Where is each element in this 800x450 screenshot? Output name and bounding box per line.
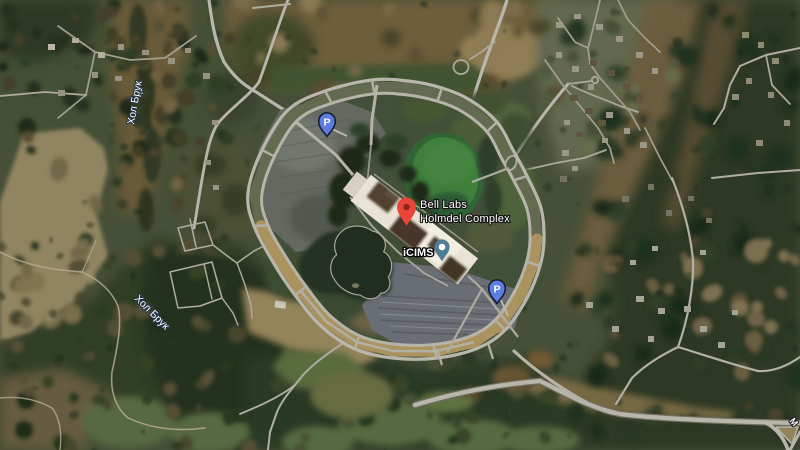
svg-text:iCIMS: iCIMS — [403, 247, 434, 259]
svg-text:Holmdel Complex: Holmdel Complex — [420, 213, 510, 225]
svg-text:Bell Labs: Bell Labs — [420, 199, 467, 211]
svg-text:P: P — [493, 283, 500, 295]
svg-text:P: P — [323, 116, 330, 128]
